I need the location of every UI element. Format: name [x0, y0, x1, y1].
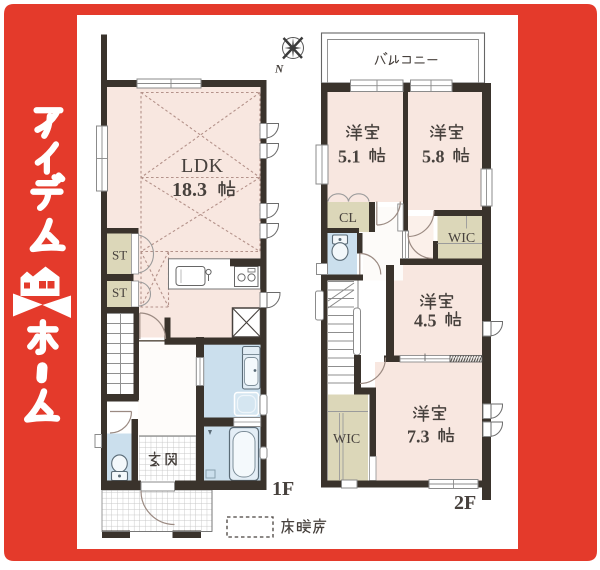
svg-text:LDK: LDK: [181, 155, 224, 177]
svg-text:WIC: WIC: [333, 432, 360, 447]
svg-text:CL: CL: [339, 211, 357, 226]
svg-text:N: N: [274, 64, 284, 76]
svg-text:1F: 1F: [272, 478, 294, 500]
svg-text:5.8: 5.8: [422, 147, 445, 167]
svg-text:18.3: 18.3: [172, 179, 207, 201]
svg-text:7.3: 7.3: [407, 427, 430, 447]
svg-text:2F: 2F: [454, 492, 476, 514]
svg-text:ST: ST: [112, 248, 127, 263]
svg-text:4.5: 4.5: [414, 311, 437, 331]
svg-text:5.1: 5.1: [338, 147, 361, 167]
svg-text:ST: ST: [112, 285, 127, 300]
svg-text:WIC: WIC: [448, 231, 475, 246]
